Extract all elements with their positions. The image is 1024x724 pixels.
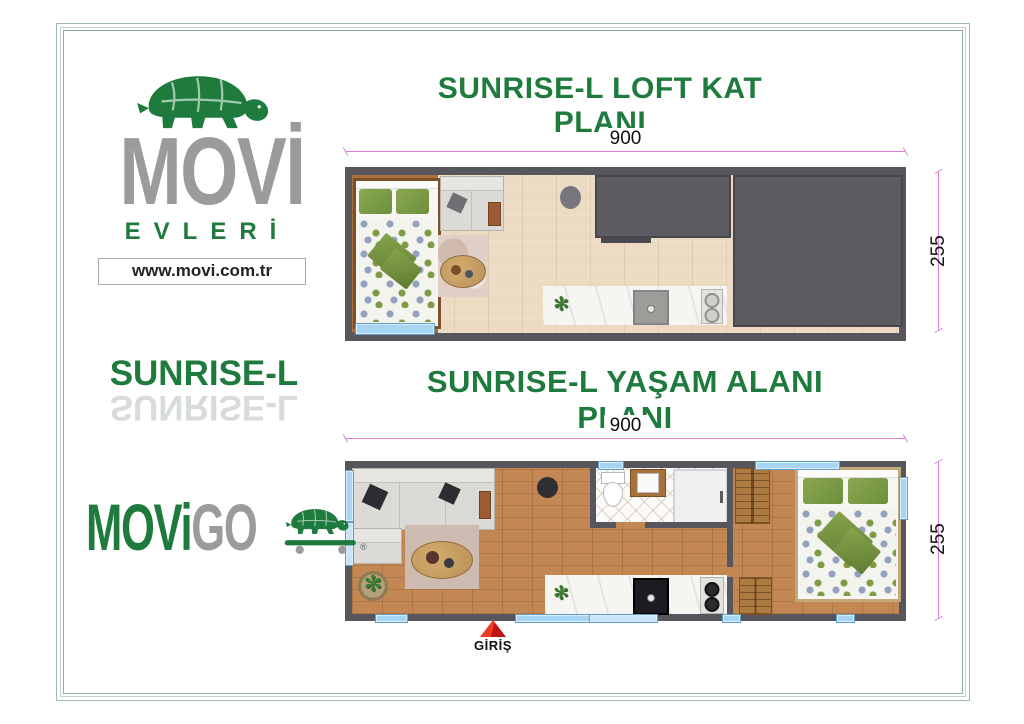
burner-icon bbox=[705, 597, 720, 612]
burner-icon bbox=[705, 582, 720, 597]
loft-railing bbox=[601, 238, 651, 243]
window bbox=[722, 614, 741, 623]
skateboard-turtle-icon bbox=[278, 500, 364, 566]
bed-headboard bbox=[356, 181, 438, 189]
cooktop bbox=[701, 289, 723, 324]
interior-wall bbox=[727, 468, 733, 567]
table-decor bbox=[451, 265, 461, 275]
shower-handle bbox=[720, 491, 723, 503]
plant-icon: ✻ bbox=[553, 584, 569, 603]
faucet-icon bbox=[647, 305, 655, 313]
bed-pillow bbox=[396, 189, 429, 214]
window bbox=[515, 614, 591, 623]
interior-wall bbox=[727, 577, 733, 614]
loft-beanbag bbox=[560, 186, 581, 209]
potted-plant: ✻ bbox=[358, 571, 388, 601]
living-width-dimension: 900 bbox=[346, 438, 905, 439]
entrance-arrow-icon bbox=[480, 620, 506, 637]
window bbox=[589, 614, 658, 623]
loft-sofa bbox=[440, 176, 504, 231]
window bbox=[836, 614, 855, 623]
kitchen-sink bbox=[633, 578, 669, 615]
burner-icon bbox=[705, 308, 720, 323]
wardrobe bbox=[735, 468, 770, 524]
entrance-marker: GİRİŞ bbox=[462, 620, 524, 653]
movigo-text-green: MOVi bbox=[86, 494, 191, 560]
bed-pillow bbox=[359, 189, 392, 214]
plant-icon: ✻ bbox=[553, 295, 569, 314]
bathroom bbox=[596, 468, 727, 522]
bed-pillow bbox=[848, 478, 888, 504]
bedroom-bed bbox=[795, 467, 901, 602]
turtle-icon bbox=[128, 66, 278, 140]
loft-coffee-table bbox=[440, 255, 486, 288]
cooktop bbox=[700, 577, 724, 614]
toilet-bowl bbox=[603, 482, 623, 507]
side-table bbox=[488, 202, 501, 226]
window bbox=[375, 614, 408, 623]
side-table bbox=[479, 491, 491, 519]
shower bbox=[673, 469, 728, 524]
window bbox=[598, 461, 624, 470]
living-height-value: 255 bbox=[928, 511, 950, 567]
registered-mark: ® bbox=[360, 542, 367, 552]
loft-kitchen-counter: ✻ bbox=[543, 286, 727, 325]
model-name-reflection: SUNRISE-L bbox=[98, 387, 310, 427]
loft-height-value: 255 bbox=[928, 223, 950, 279]
loft-void-opening bbox=[733, 175, 903, 327]
movi-logo: MOVİ EVLERİ www.movi.com.tr bbox=[96, 66, 308, 285]
window bbox=[899, 477, 908, 520]
bed-duvet bbox=[358, 218, 436, 322]
bathroom-sink bbox=[637, 473, 659, 493]
loft-width-dimension: 900 bbox=[346, 151, 905, 152]
brand-name: MOVİ bbox=[119, 128, 284, 216]
bed-headboard bbox=[798, 470, 898, 478]
interior-wall bbox=[590, 522, 616, 528]
living-beanbag bbox=[537, 477, 558, 498]
bathroom-vanity bbox=[630, 469, 666, 497]
living-kitchen-counter: ✻ bbox=[545, 575, 727, 614]
bed-duvet bbox=[800, 508, 896, 596]
toilet bbox=[601, 472, 623, 506]
kitchen-sink bbox=[633, 290, 669, 325]
sofa-seam bbox=[471, 190, 472, 230]
entrance-label: GİRİŞ bbox=[462, 638, 524, 653]
bed-pillow bbox=[803, 478, 843, 504]
burner-icon bbox=[705, 293, 720, 308]
loft-width-value: 900 bbox=[604, 128, 648, 150]
table-decor bbox=[444, 558, 454, 568]
brochure-page: MOVİ EVLERİ www.movi.com.tr SUNRISE-L LO… bbox=[0, 0, 1024, 724]
plant-icon: ✻ bbox=[364, 572, 382, 597]
faucet-icon bbox=[647, 594, 655, 602]
interior-wall bbox=[590, 468, 596, 527]
loft-floor-plan: ✻ bbox=[345, 167, 906, 341]
sofa-pillow bbox=[438, 482, 461, 505]
window bbox=[755, 461, 840, 470]
living-width-value: 900 bbox=[604, 415, 648, 437]
interior-wall bbox=[645, 522, 727, 528]
loft-void-opening bbox=[595, 175, 731, 238]
movigo-logo: MOVi GO ® bbox=[86, 494, 437, 564]
website-label[interactable]: www.movi.com.tr bbox=[98, 258, 306, 285]
wardrobe bbox=[739, 577, 772, 615]
movigo-text-gray: GO bbox=[191, 494, 256, 560]
loft-bed bbox=[353, 178, 441, 329]
window bbox=[355, 323, 435, 335]
loft-plan-title: SUNRISE-L LOFT KAT PLANI bbox=[388, 72, 812, 140]
sofa-pillow bbox=[446, 192, 467, 213]
table-decor bbox=[465, 270, 473, 278]
